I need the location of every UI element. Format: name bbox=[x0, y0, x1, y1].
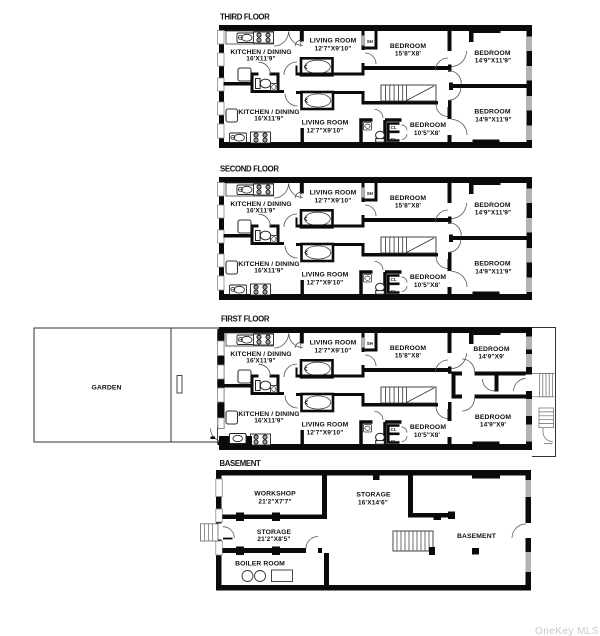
svg-text:16'X11'9": 16'X11'9" bbox=[254, 417, 284, 424]
svg-text:10'5"X8': 10'5"X8' bbox=[414, 432, 440, 439]
svg-text:CL: CL bbox=[391, 289, 397, 294]
svg-text:STORAGE: STORAGE bbox=[257, 529, 292, 536]
svg-text:SH: SH bbox=[367, 191, 373, 196]
svg-text:12'7"X9'10": 12'7"X9'10" bbox=[315, 46, 352, 53]
svg-text:CL: CL bbox=[391, 427, 397, 432]
svg-text:SECOND FLOOR: SECOND FLOOR bbox=[220, 165, 279, 174]
svg-text:16'X11'9": 16'X11'9" bbox=[254, 115, 284, 122]
svg-text:12'7"X9'10": 12'7"X9'10" bbox=[315, 348, 352, 355]
svg-text:14'9"X9': 14'9"X9' bbox=[480, 421, 506, 428]
svg-text:LIVING ROOM: LIVING ROOM bbox=[310, 190, 357, 197]
svg-text:LIVING ROOM: LIVING ROOM bbox=[310, 340, 357, 347]
svg-text:BASEMENT: BASEMENT bbox=[220, 459, 262, 468]
svg-text:BEDROOM: BEDROOM bbox=[473, 346, 509, 353]
svg-text:BEDROOM: BEDROOM bbox=[410, 274, 446, 281]
svg-text:OneKey MLS: OneKey MLS bbox=[535, 626, 599, 636]
svg-text:BOILER ROOM: BOILER ROOM bbox=[235, 561, 285, 568]
svg-text:14'9"X11'9": 14'9"X11'9" bbox=[475, 58, 512, 65]
svg-text:15'8"X8': 15'8"X8' bbox=[395, 353, 421, 360]
svg-text:16'X11'9": 16'X11'9" bbox=[246, 358, 276, 365]
svg-text:BEDROOM: BEDROOM bbox=[390, 345, 426, 352]
svg-text:12'7"X9'10": 12'7"X9'10" bbox=[307, 128, 344, 135]
svg-text:14'9"X11'9": 14'9"X11'9" bbox=[475, 210, 512, 217]
svg-text:SH: SH bbox=[367, 39, 373, 44]
svg-text:BASEMENT: BASEMENT bbox=[457, 533, 497, 540]
svg-text:LIVING ROOM: LIVING ROOM bbox=[302, 120, 349, 127]
svg-text:12'7"X9'10": 12'7"X9'10" bbox=[307, 280, 344, 287]
svg-text:BEDROOM: BEDROOM bbox=[474, 109, 510, 116]
svg-text:14'9"X11'9": 14'9"X11'9" bbox=[475, 268, 512, 275]
svg-text:BEDROOM: BEDROOM bbox=[390, 43, 426, 50]
svg-text:15'8"X8': 15'8"X8' bbox=[395, 203, 421, 210]
svg-text:GARDEN: GARDEN bbox=[91, 385, 121, 392]
svg-text:14'9"X9': 14'9"X9' bbox=[478, 353, 504, 360]
svg-text:LIVING ROOM: LIVING ROOM bbox=[310, 38, 357, 45]
svg-text:LIVING ROOM: LIVING ROOM bbox=[302, 422, 349, 429]
svg-text:12'7"X9'10": 12'7"X9'10" bbox=[315, 198, 352, 205]
svg-text:THIRD FLOOR: THIRD FLOOR bbox=[220, 13, 270, 22]
svg-text:BEDROOM: BEDROOM bbox=[410, 122, 446, 129]
svg-text:BEDROOM: BEDROOM bbox=[390, 195, 426, 202]
svg-text:16'X11'9": 16'X11'9" bbox=[246, 208, 276, 215]
svg-text:BEDROOM: BEDROOM bbox=[474, 50, 510, 57]
svg-text:SH: SH bbox=[367, 341, 373, 346]
svg-text:WORKSHOP: WORKSHOP bbox=[254, 491, 296, 498]
svg-text:21'2"X8'5": 21'2"X8'5" bbox=[257, 536, 290, 543]
svg-text:CL: CL bbox=[391, 137, 397, 142]
svg-text:15'8"X8': 15'8"X8' bbox=[395, 51, 421, 58]
svg-text:BEDROOM: BEDROOM bbox=[474, 261, 510, 268]
svg-text:21'2"X7'7": 21'2"X7'7" bbox=[258, 499, 291, 506]
svg-text:16'X11'9": 16'X11'9" bbox=[246, 56, 276, 63]
svg-text:BEDROOM: BEDROOM bbox=[410, 424, 446, 431]
svg-text:BEDROOM: BEDROOM bbox=[474, 202, 510, 209]
svg-text:16'X11'9": 16'X11'9" bbox=[254, 267, 284, 274]
svg-text:BEDROOM: BEDROOM bbox=[475, 414, 511, 421]
svg-text:CL: CL bbox=[391, 277, 397, 282]
svg-text:CL: CL bbox=[391, 439, 397, 444]
svg-text:12'7"X9'10": 12'7"X9'10" bbox=[307, 430, 344, 437]
svg-text:14'9"X11'9": 14'9"X11'9" bbox=[475, 116, 512, 123]
svg-text:FIRST FLOOR: FIRST FLOOR bbox=[221, 315, 270, 324]
svg-text:10'5"X8': 10'5"X8' bbox=[414, 282, 440, 289]
svg-text:LIVING ROOM: LIVING ROOM bbox=[302, 272, 349, 279]
svg-text:10'5"X8': 10'5"X8' bbox=[414, 130, 440, 137]
svg-text:STORAGE: STORAGE bbox=[356, 492, 391, 499]
svg-text:16'X14'6": 16'X14'6" bbox=[358, 500, 388, 507]
svg-text:CL: CL bbox=[391, 125, 397, 130]
